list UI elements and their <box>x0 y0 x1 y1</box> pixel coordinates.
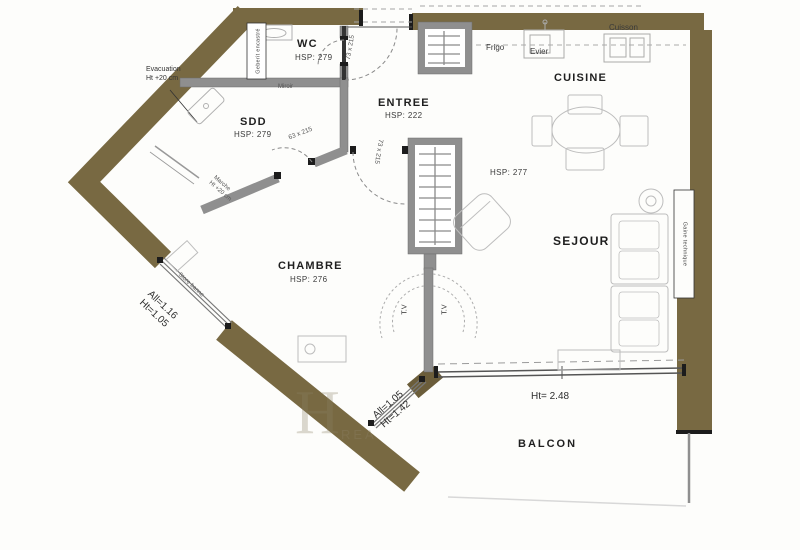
room-label-sejour: SEJOUR <box>553 234 610 248</box>
room-label-sdd: SDD <box>240 116 267 128</box>
wall-sdd-chambre-b <box>314 150 346 163</box>
chambre-desk <box>298 336 346 362</box>
dining-set <box>532 95 648 170</box>
room-label-cuisine: CUISINE <box>554 72 607 84</box>
watermark-text: REA <box>341 427 377 442</box>
step-line <box>155 146 199 178</box>
geberit-note: Geberit encastré <box>256 28 262 73</box>
tv-label-sejour: T.V <box>442 304 449 314</box>
cooktop-symbol <box>604 34 650 62</box>
room-label-wc: WC <box>297 38 318 50</box>
technical-duct-note: Gaine technique <box>681 222 687 267</box>
room-hsp-sejour: HSP: 277 <box>490 168 527 177</box>
wall-stub-below-closet <box>424 254 436 270</box>
balcony-edge-bottom <box>448 497 686 506</box>
room-hsp-chambre: HSP: 276 <box>290 275 327 284</box>
label-frigo: Frigo <box>486 43 504 52</box>
room-label-balcon: BALCON <box>518 438 577 450</box>
room-hsp-entree: HSP: 222 <box>385 111 422 120</box>
right-wall-end-cap <box>676 430 712 434</box>
wall-sdd-entree <box>340 78 348 152</box>
watermark-letter: H <box>295 378 340 449</box>
coffee-table <box>558 350 620 370</box>
floor-plan-drawing <box>0 0 800 550</box>
tv-label-chambre: T.V <box>402 304 409 314</box>
exterior-wall-top-left <box>233 8 363 25</box>
balcony-sliding-door <box>436 366 684 379</box>
sdd-basin <box>187 87 225 125</box>
room-hsp-sdd: HSP: 279 <box>234 130 271 139</box>
wall-chambre-sejour <box>424 268 433 372</box>
room-label-entree: ENTREE <box>378 97 430 109</box>
floor-plan: WC HSP: 279 SDD HSP: 279 ENTREE HSP: 222… <box>0 0 800 550</box>
label-cuisson: Cuisson <box>609 23 638 32</box>
exterior-wall-northwest-diagonal <box>84 14 246 260</box>
curtain-dashed-line <box>438 360 684 364</box>
room-label-chambre: CHAMBRE <box>278 260 343 272</box>
sofa <box>611 214 668 352</box>
side-table <box>639 189 663 213</box>
mirror-note: Miroir <box>278 84 293 91</box>
chambre-corner-chair <box>166 241 198 272</box>
evacuation-note: EvacuationHt +20 cm <box>146 66 181 84</box>
label-evier: Evier <box>530 47 548 56</box>
sdd-door-arc <box>272 148 312 162</box>
bay-window-height: Ht= 2.48 <box>531 391 569 403</box>
room-hsp-wc: HSP: 279 <box>295 53 332 62</box>
